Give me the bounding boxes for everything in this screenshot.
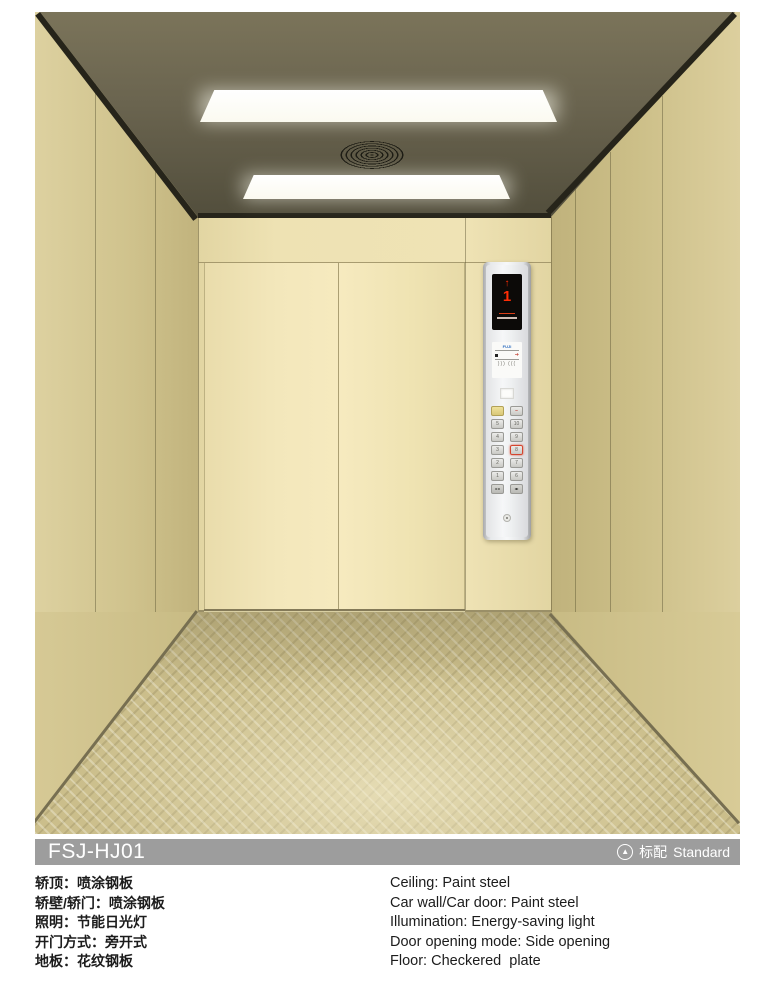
floor-number: 1	[503, 289, 511, 304]
button-row: –	[491, 406, 523, 416]
stop-button[interactable]: –	[510, 406, 523, 416]
display-text-line	[499, 313, 515, 314]
button-row: ▸◂ ◂▸	[491, 484, 523, 494]
ceiling-light-panel-near	[243, 175, 510, 199]
floor-button-5[interactable]: 5	[491, 419, 504, 429]
car-operating-panel: ↑ 1 FUJI ➔ ))) ((( –	[483, 262, 531, 540]
button-row: 5 10	[491, 419, 523, 429]
floor-button-2[interactable]: 2	[491, 458, 504, 468]
door-open-button[interactable]: ◂▸	[510, 484, 523, 494]
cop-button-grid: – 5 10 4 9 3 8 2 7 1	[491, 406, 523, 494]
floor-button-3[interactable]: 3	[491, 445, 504, 455]
model-bar: FSJ-HJ01 ▲ 标配 Standard	[35, 839, 740, 865]
key-switch-icon	[503, 514, 511, 522]
up-arrow-circle-icon: ▲	[617, 844, 633, 860]
badge-label-en: Standard	[673, 844, 730, 860]
badge-label-cn: 标配	[639, 842, 667, 862]
floor-button-4[interactable]: 4	[491, 432, 504, 442]
ceiling-light-panel-far	[200, 90, 557, 122]
spec-line: 照明：节能日光灯	[35, 913, 165, 933]
spec-line: Car wall/Car door: Paint steel	[390, 894, 610, 914]
brand-label-plate: FUJI ➔ ))) (((	[492, 342, 522, 378]
label-row: ➔	[495, 353, 519, 358]
door-center-seam	[338, 263, 339, 609]
door-edge-line	[204, 263, 205, 609]
brand-text: FUJI	[503, 344, 512, 349]
button-row: 3 8	[491, 445, 523, 455]
floor-button-9[interactable]: 9	[510, 432, 523, 442]
catalog-page: ↑ 1 FUJI ➔ ))) ((( –	[0, 0, 771, 988]
spec-line: 地板：花纹钢板	[35, 952, 165, 972]
spec-line: Floor: Checkered plate	[390, 952, 610, 972]
spec-list-chinese: 轿顶：喷涂钢板 轿壁/轿门：喷涂钢板 照明：节能日光灯 开门方式：旁开式 地板：…	[35, 874, 165, 972]
label-line	[495, 359, 519, 360]
display-text-line	[497, 317, 517, 319]
back-wall-corner-line	[198, 217, 199, 612]
wall-panel-seam	[155, 161, 156, 668]
floor-button-6[interactable]: 6	[510, 471, 523, 481]
label-line	[495, 350, 519, 351]
floor-button-8-active[interactable]: 8	[510, 445, 523, 455]
model-number: FSJ-HJ01	[48, 840, 145, 864]
wall-panel-seam	[575, 189, 576, 640]
spec-line: Door opening mode: Side opening	[390, 933, 610, 953]
spec-line: 轿顶：喷涂钢板	[35, 874, 165, 894]
ventilation-fan-icon	[340, 141, 404, 169]
red-arrow-icon: ➔	[515, 353, 519, 358]
door-edge-line	[464, 263, 465, 609]
button-row: 4 9	[491, 432, 523, 442]
alarm-button[interactable]	[491, 406, 504, 416]
wave-marks: ))) (((	[498, 362, 516, 367]
floor-button-1[interactable]: 1	[491, 471, 504, 481]
back-wall-corner-line	[551, 217, 552, 612]
spec-list-english: Ceiling: Paint steel Car wall/Car door: …	[390, 874, 610, 972]
elevator-interior-photo: ↑ 1 FUJI ➔ ))) ((( –	[35, 12, 740, 834]
spec-line: 轿壁/轿门：喷涂钢板	[35, 894, 165, 914]
label-mark	[495, 354, 498, 357]
ceiling-trim-back	[198, 213, 551, 218]
spec-line: Ceiling: Paint steel	[390, 874, 610, 894]
floor-button-10[interactable]: 10	[510, 419, 523, 429]
cop-column-seam	[465, 217, 466, 612]
car-doors	[204, 263, 465, 609]
spec-line: Illumination: Energy-saving light	[390, 913, 610, 933]
cop-light-indicator	[500, 388, 514, 399]
button-row: 1 6	[491, 471, 523, 481]
spec-line: 开门方式：旁开式	[35, 933, 165, 953]
standard-badge: ▲ 标配 Standard	[617, 842, 730, 862]
button-row: 2 7	[491, 458, 523, 468]
door-close-button[interactable]: ▸◂	[491, 484, 504, 494]
wall-panel-seam	[610, 152, 611, 678]
floor-button-7[interactable]: 7	[510, 458, 523, 468]
floor-indicator-display: ↑ 1	[492, 274, 522, 330]
